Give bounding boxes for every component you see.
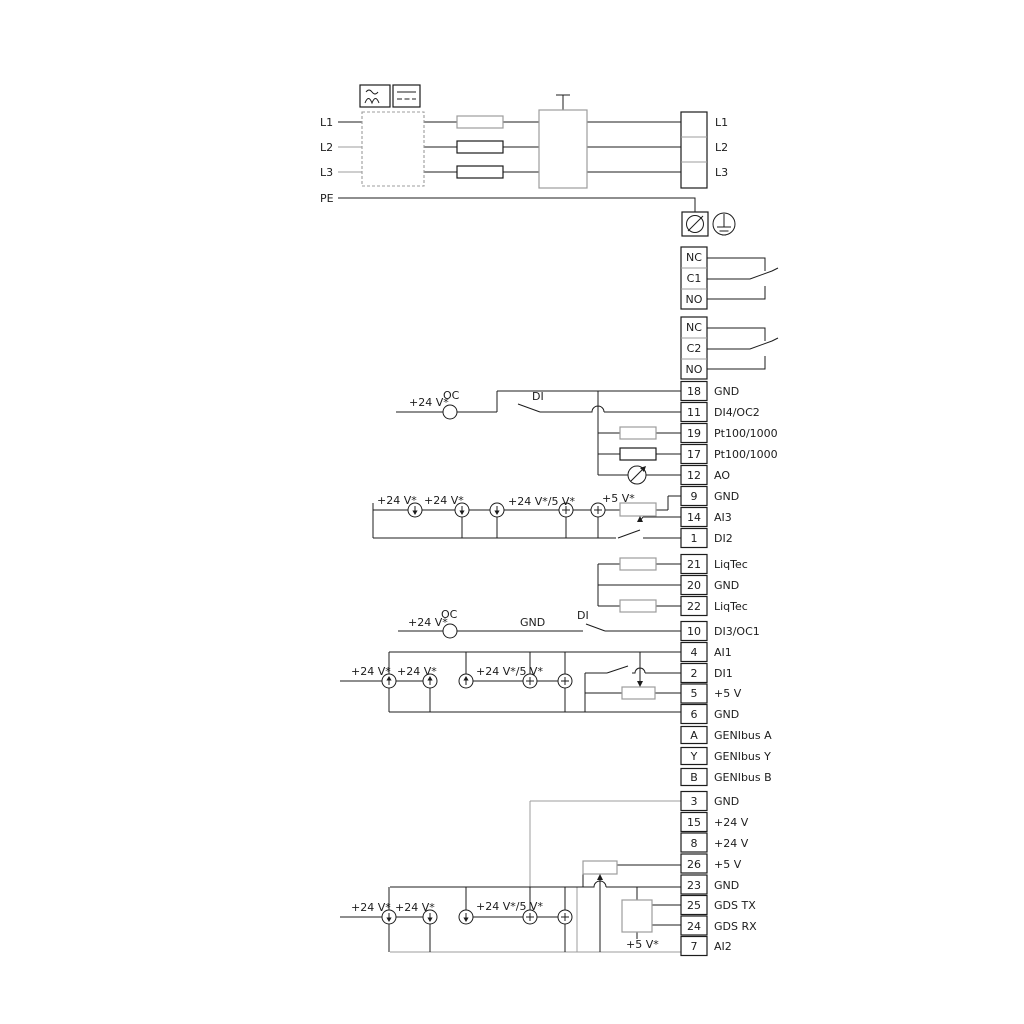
pe-label: PE [320,192,334,205]
phase-label: L3 [715,166,728,179]
terminal-number: 26 [687,858,701,871]
terminal-label: LiqTec [714,600,748,613]
terminal-number: C1 [687,272,702,285]
terminal-number: Y [690,750,698,763]
terminal-number: A [690,729,698,742]
terminal-label: Pt100/1000 [714,448,778,461]
ao-meter-icon [628,466,646,484]
terminal-number: 11 [687,406,701,419]
fuse-l1 [457,116,503,128]
supply-label: +5 V* [626,938,659,951]
relay-wires [706,258,778,369]
supply-label: +5 V* [602,492,635,505]
terminal-number: 12 [687,469,701,482]
earth-bars [717,214,731,235]
terminal-number: B [690,771,698,784]
terminal-label: +5 V [714,687,742,700]
terminal-label: +5 V [714,858,742,871]
terminal-label: DI3/OC1 [714,625,760,638]
terminal-number: 20 [687,579,701,592]
terminal-number: 10 [687,625,701,638]
liqtec-sensor [620,558,656,570]
wiring-diagram: L1 L2 L3 PE L1 L2 L3 NC C1 NO NC C2 NO 1… [0,0,1024,1024]
terminal-number: 25 [687,899,701,912]
gds-sensor-box [622,900,652,932]
gray-wires [338,112,681,952]
fuses [457,116,503,178]
terminal-label: LiqTec [714,558,748,571]
terminal-number: 9 [691,490,698,503]
oc-label: OC [443,389,460,402]
wiring-black [338,95,778,952]
terminal-number: NO [686,293,703,306]
phase-label: L1 [715,116,728,129]
terminal-number: C2 [687,342,702,355]
wiring-gray [338,112,681,952]
terminal-label: +24 V [714,816,749,829]
mains-out-block [681,112,707,188]
potentiometer [622,681,655,699]
terminal-number: 2 [691,667,698,680]
supply-label: +24 V*/5 V* [476,665,543,678]
terminal-label: AI1 [714,646,732,659]
diagram-canvas: L1 L2 L3 PE L1 L2 L3 NC C1 NO NC C2 NO 1… [0,0,1024,1024]
di-label: DI [577,609,589,622]
fuse-l3 [457,166,503,178]
supply-label: +24 V* [377,494,417,507]
terminal-number: 7 [691,940,698,953]
mains-wires [338,95,695,212]
terminal-label: GDS TX [714,899,756,912]
terminal-label: GND [714,385,739,398]
terminal-number: 18 [687,385,701,398]
terminal-label: GENIbus B [714,771,772,784]
terminal-label: AI2 [714,940,732,953]
supply-label: +24 V* [397,665,437,678]
terminal-label: GENIbus A [714,729,772,742]
terminal-number: 17 [687,448,701,461]
terminal-number: 15 [687,816,701,829]
terminal-label: GND [714,579,739,592]
terminal-number: 3 [691,795,698,808]
terminal-number: 22 [687,600,701,613]
ac-box [360,85,390,107]
phase-label: L1 [320,116,333,129]
filter-dashed-box [362,112,424,186]
main-switch-box [539,110,587,188]
terminal-number: 6 [691,708,698,721]
terminal-label: +24 V [714,837,749,850]
mains-out-labels: L1 L2 L3 [715,116,728,179]
potentiometer [620,503,656,522]
terminal-number: 24 [687,920,701,933]
terminal-label: Pt100/1000 [714,427,778,440]
terminal-box [681,112,707,188]
mains-in-labels: L1 L2 L3 PE [320,116,334,205]
liqtec-labels: 21 LiqTec 20 GND 22 LiqTec [687,558,748,613]
oc-label: OC [441,608,458,621]
terminal-number: 21 [687,558,701,571]
terminal-number: 1 [691,532,698,545]
dc-box [393,85,420,107]
supply-label: +24 V* [351,665,391,678]
phase-label: L2 [320,141,333,154]
terminal-number: 23 [687,879,701,892]
terminal-number: 4 [691,646,698,659]
terminal-label: GND [714,708,739,721]
pt100-resistor [620,448,656,460]
phase-label: L3 [320,166,333,179]
supply-label: +24 V* [351,901,391,914]
terminal-label: DI2 [714,532,733,545]
ac-symbol-box [360,85,390,107]
phase-label: L2 [715,141,728,154]
supply-label: +24 V*/5 V* [508,495,575,508]
terminal-label: GND [714,879,739,892]
terminal-number: NC [686,251,702,264]
supply-label: +24 V* [424,494,464,507]
dc-symbol-box [393,85,420,107]
terminal-label: GND [714,795,739,808]
terminal-number: 14 [687,511,701,524]
io-group3-labels: 3 GND 15 +24 V 8 +24 V 26 +5 V 23 GND 25… [687,795,757,953]
terminal-label: GENIbus Y [714,750,771,763]
pe-terminals [682,212,735,236]
terminal-number: 8 [691,837,698,850]
terminal-label: DI1 [714,667,733,680]
terminal-label: DI4/OC2 [714,406,760,419]
supply-label: +24 V*/5 V* [476,900,543,913]
terminal-label: AI3 [714,511,732,524]
terminal-label: GDS RX [714,920,757,933]
fuse-l2 [457,141,503,153]
terminal-number: 5 [691,687,698,700]
potentiometer [583,861,617,880]
pt100-resistor [620,427,656,439]
terminal-number: NO [686,363,703,376]
terminal-label: GND [714,490,739,503]
supply-label: +24 V* [395,901,435,914]
terminal-number: NC [686,321,702,334]
terminal-label: AO [714,469,730,482]
liqtec-sensor [620,600,656,612]
di-label: DI [532,390,544,403]
terminal-number: 19 [687,427,701,440]
gnd-label: GND [520,616,545,629]
